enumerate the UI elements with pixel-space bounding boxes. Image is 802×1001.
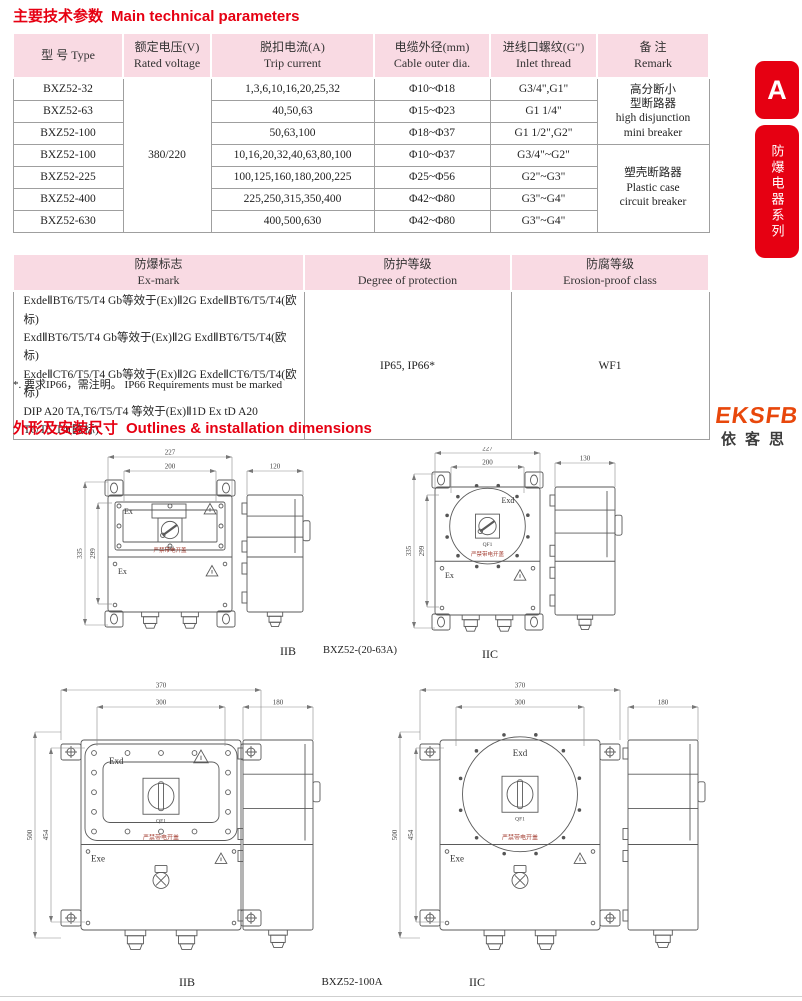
cell-type: BXZ52-63	[13, 100, 123, 122]
dimension-lines	[83, 455, 303, 625]
drawing-svg: ExdQF1严禁带电开盖Exe370300500454180IIC	[390, 678, 710, 996]
cell-voltage: 380/220	[123, 78, 211, 232]
dimension-label: 300	[515, 699, 526, 707]
cell-type: BXZ52-225	[13, 166, 123, 188]
dimension-label: 500	[26, 829, 34, 840]
warning-text: 严禁带电开盖	[471, 550, 505, 558]
header-erosion: 防腐等级Erosion-proof class	[511, 254, 709, 291]
dimension-lines	[33, 688, 313, 938]
header-cable: 电缆外径(mm)Cable outer dia.	[374, 33, 490, 78]
section1-title-zh: 主要技术参数	[13, 8, 103, 25]
side-tab-letter: A	[755, 61, 799, 119]
dimension-label: 300	[156, 699, 167, 707]
dimension-label: 454	[42, 829, 50, 840]
cell-type: BXZ52-400	[13, 188, 123, 210]
switch-label: QF1	[156, 818, 166, 824]
dimension-label: 370	[515, 682, 526, 690]
drawing-outlines	[105, 480, 310, 628]
catalog-page: { "section1": {"title_zh": "主要技术参数", "ti…	[0, 0, 802, 999]
brand-logo-text: EKSFB	[710, 404, 802, 427]
dimension-lines	[398, 688, 698, 938]
header-trip: 脱扣电流(A)Trip current	[211, 33, 374, 78]
cell-thread: G3"~G4"	[490, 210, 597, 232]
cell-cable: Φ10~Φ18	[374, 78, 490, 100]
cell-thread: G3/4",G1"	[490, 78, 597, 100]
drawing-caption-row2: BXZ52-100A	[302, 976, 402, 988]
dimension-lines	[412, 451, 615, 628]
cell-cable: Φ15~Φ23	[374, 100, 490, 122]
technical-drawing-large-iib: ExdQF1严禁带电开盖Exe370300500454180IIB	[25, 678, 355, 1001]
technical-drawing-small-iic: ExdQF1严禁带电开盖Ex227200335299130IIC	[400, 447, 690, 670]
header-voltage: 额定电压(V)Rated voltage	[123, 33, 211, 78]
exmark-table: 防爆标志Ex-mark 防护等级Degree of protection 防腐等…	[12, 253, 710, 440]
cell-type: BXZ52-100	[13, 122, 123, 144]
drawing-label: Ex	[445, 571, 454, 580]
dimension-label: 299	[418, 545, 426, 556]
technical-drawing-large-iic: ExdQF1严禁带电开盖Exe370300500454180IIC	[390, 678, 710, 1001]
dimension-label: 130	[580, 455, 591, 463]
section2-title-zh: 外形及安装尺寸	[13, 420, 118, 437]
drawing-label: Exd	[109, 756, 124, 766]
drawing-svg: ExdQF1严禁带电开盖Exe370300500454180IIB	[25, 678, 355, 996]
drawing-outlines	[432, 472, 622, 631]
cell-thread: G1 1/4"	[490, 100, 597, 122]
warning-text: 严禁带电开盖	[153, 546, 187, 554]
switch-label: QF1	[515, 816, 525, 822]
cell-trip: 225,250,315,350,400	[211, 188, 374, 210]
dimension-label: 200	[165, 463, 176, 471]
drawing-label: Exe	[91, 854, 105, 864]
drawing-caption: IIC	[482, 647, 498, 661]
cell-thread: G1 1/2",G2"	[490, 122, 597, 144]
table-header-row: 防爆标志Ex-mark 防护等级Degree of protection 防腐等…	[13, 254, 709, 291]
cell-thread: G3"~G4"	[490, 188, 597, 210]
dimension-label: 335	[405, 545, 413, 556]
drawing-svg: ExdQF1严禁带电开盖Ex227200335299130IIC	[400, 447, 690, 665]
brand-logo: EKSFB 依客思	[712, 404, 802, 449]
cell-thread: G3/4"~G2"	[490, 144, 597, 166]
drawing-outlines	[420, 733, 705, 950]
header-thread: 进线口螺纹(G")Inlet thread	[490, 33, 597, 78]
dimension-label: 120	[270, 463, 281, 471]
drawing-caption-row1: BXZ52-(20-63A)	[300, 645, 420, 656]
cell-cable: Φ18~Φ37	[374, 122, 490, 144]
dimension-label: 200	[482, 459, 493, 467]
header-exmark: 防爆标志Ex-mark	[13, 254, 304, 291]
footnote: *. 要求IP66，需注明。 IP66 Requirements must be…	[13, 376, 282, 392]
dimension-label: 180	[273, 699, 284, 707]
cell-remark-1: 高分断小型断路器 high disjunctionmini breaker	[597, 78, 709, 144]
cell-type: BXZ52-100	[13, 144, 123, 166]
warning-text: 严禁带电开盖	[502, 834, 538, 842]
cell-cable: Φ42~Φ80	[374, 210, 490, 232]
drawing-label: Ex	[118, 567, 127, 576]
cell-trip: 100,125,160,180,200,225	[211, 166, 374, 188]
drawing-outlines	[61, 740, 320, 950]
drawing-label: Ex	[124, 507, 133, 516]
cell-cable: Φ42~Φ80	[374, 188, 490, 210]
cell-trip: 40,50,63	[211, 100, 374, 122]
table-row: BXZ52-100 10,16,20,32,40,63,80,100 Φ10~Φ…	[13, 144, 709, 166]
header-protection: 防护等级Degree of protection	[304, 254, 511, 291]
dimension-label: 370	[156, 682, 167, 690]
drawing-caption: IIC	[469, 975, 485, 989]
cell-trip: 400,500,630	[211, 210, 374, 232]
section1-title-en: Main technical parameters	[111, 8, 299, 25]
table-row: BXZ52-32 380/220 1,3,6,10,16,20,25,32 Φ1…	[13, 78, 709, 100]
drawing-label: Exd	[502, 496, 515, 505]
drawing-caption: IIB	[179, 975, 195, 989]
switch-label: QF1	[483, 542, 493, 548]
main-parameters-table: 型 号 Type 额定电压(V)Rated voltage 脱扣电流(A)Tri…	[12, 32, 710, 233]
cell-cable: Φ10~Φ37	[374, 144, 490, 166]
page-bottom-rule	[0, 996, 802, 997]
drawing-caption: IIB	[280, 644, 296, 658]
section2-title-en: Outlines & installation dimensions	[126, 420, 372, 437]
dimension-label: 454	[407, 829, 415, 840]
drawing-svg: ExQF1严禁带电开盖Ex227200335299120IIB	[40, 447, 340, 665]
cell-thread: G2"~G3"	[490, 166, 597, 188]
header-remark: 备 注Remark	[597, 33, 709, 78]
cell-trip: 1,3,6,10,16,20,25,32	[211, 78, 374, 100]
cell-type: BXZ52-32	[13, 78, 123, 100]
cell-remark-2: 塑壳断路器Plastic case circuit breaker	[597, 144, 709, 232]
dimension-label: 500	[391, 829, 399, 840]
section2-title: 外形及安装尺寸Outlines & installation dimension…	[13, 417, 372, 438]
side-tab-series: 防爆电器系列	[755, 125, 799, 258]
dimension-label: 227	[482, 447, 493, 453]
header-type: 型 号 Type	[13, 33, 123, 78]
drawing-label: Exe	[450, 854, 464, 864]
cell-erosion: WF1	[511, 291, 709, 440]
cell-cable: Φ25~Φ56	[374, 166, 490, 188]
technical-drawing-small-iib: ExQF1严禁带电开盖Ex227200335299120IIB	[40, 447, 340, 670]
section1-title: 主要技术参数Main technical parameters	[13, 5, 299, 26]
cell-type: BXZ52-630	[13, 210, 123, 232]
cell-trip: 10,16,20,32,40,63,80,100	[211, 144, 374, 166]
dimension-label: 299	[89, 548, 97, 559]
warning-text: 严禁带电开盖	[143, 834, 179, 842]
table-header-row: 型 号 Type 额定电压(V)Rated voltage 脱扣电流(A)Tri…	[13, 33, 709, 78]
dimension-label: 335	[76, 548, 84, 559]
cell-trip: 50,63,100	[211, 122, 374, 144]
brand-logo-cn: 依客思	[712, 428, 802, 449]
dimension-label: 180	[658, 699, 669, 707]
drawing-label: Exd	[513, 748, 528, 758]
dimension-label: 227	[165, 449, 176, 457]
